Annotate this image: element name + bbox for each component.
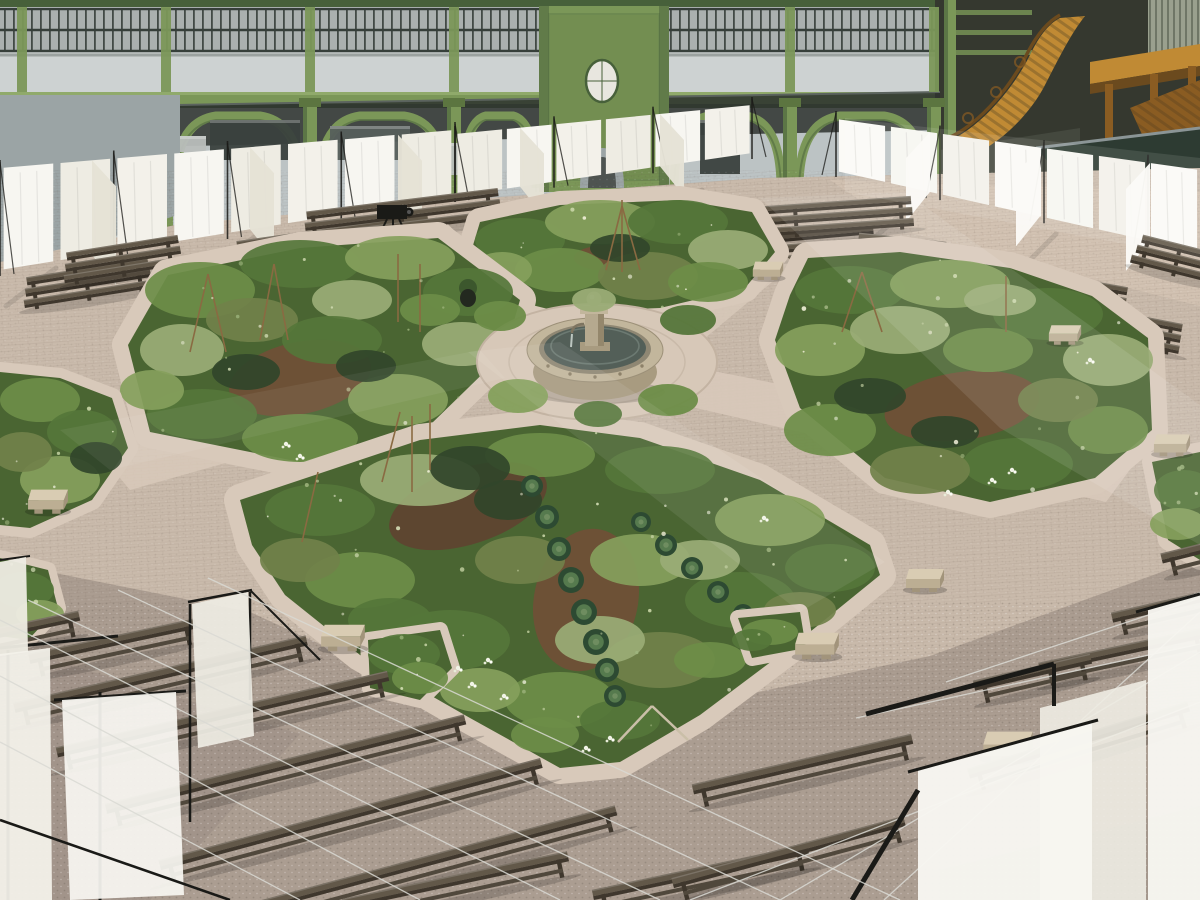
stone-bench [792,633,843,662]
garden-hall-photo [0,0,1200,900]
stone-bench [750,262,785,282]
photo-scene [0,0,1200,900]
planter-bottom-right [732,612,806,658]
stone-bench [903,569,947,595]
stone-bench [25,490,71,517]
